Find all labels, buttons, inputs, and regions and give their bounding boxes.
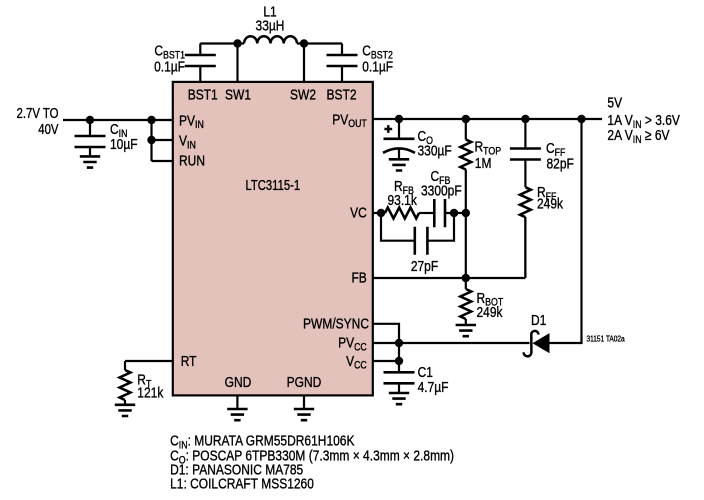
svg-text:249k: 249k [537,195,563,212]
svg-text:10µF: 10µF [110,136,138,153]
svg-text:BST2: BST2 [326,86,356,103]
svg-text:1M: 1M [475,155,492,172]
svg-text:FB: FB [351,269,366,286]
svg-text:D1: D1 [531,312,546,329]
svg-text:121k: 121k [137,384,163,401]
svg-text:L1: COILCRAFT MSS1260: L1: COILCRAFT MSS1260 [170,475,314,492]
svg-text:SW1: SW1 [225,86,251,103]
svg-text:3300pF: 3300pF [421,182,462,199]
svg-text:249k: 249k [477,304,503,321]
svg-text:40V: 40V [38,120,58,137]
svg-text:2.7V TO: 2.7V TO [16,105,58,122]
svg-text:RUN: RUN [179,152,205,169]
svg-text:RT: RT [181,353,197,370]
svg-text:31151 TA02a: 31151 TA02a [587,334,626,344]
svg-text:330µF: 330µF [418,142,452,159]
svg-text:PGND: PGND [287,374,322,391]
svg-text:4.7µF: 4.7µF [418,379,449,396]
svg-text:33µH: 33µH [256,17,285,34]
svg-text:PWM/SYNC: PWM/SYNC [303,315,369,332]
svg-text:GND: GND [225,374,252,391]
svg-text:LTC3115-1: LTC3115-1 [246,176,301,193]
svg-text:93.1k: 93.1k [388,192,418,209]
svg-text:SW2: SW2 [290,86,316,103]
svg-text:0.1µF: 0.1µF [154,58,185,75]
svg-text:VC: VC [350,204,367,221]
svg-text:82pF: 82pF [547,155,574,172]
svg-text:5V: 5V [607,94,622,111]
svg-text:BST1: BST1 [188,86,218,103]
svg-text:0.1µF: 0.1µF [362,58,393,75]
svg-text:27pF: 27pF [411,258,438,275]
